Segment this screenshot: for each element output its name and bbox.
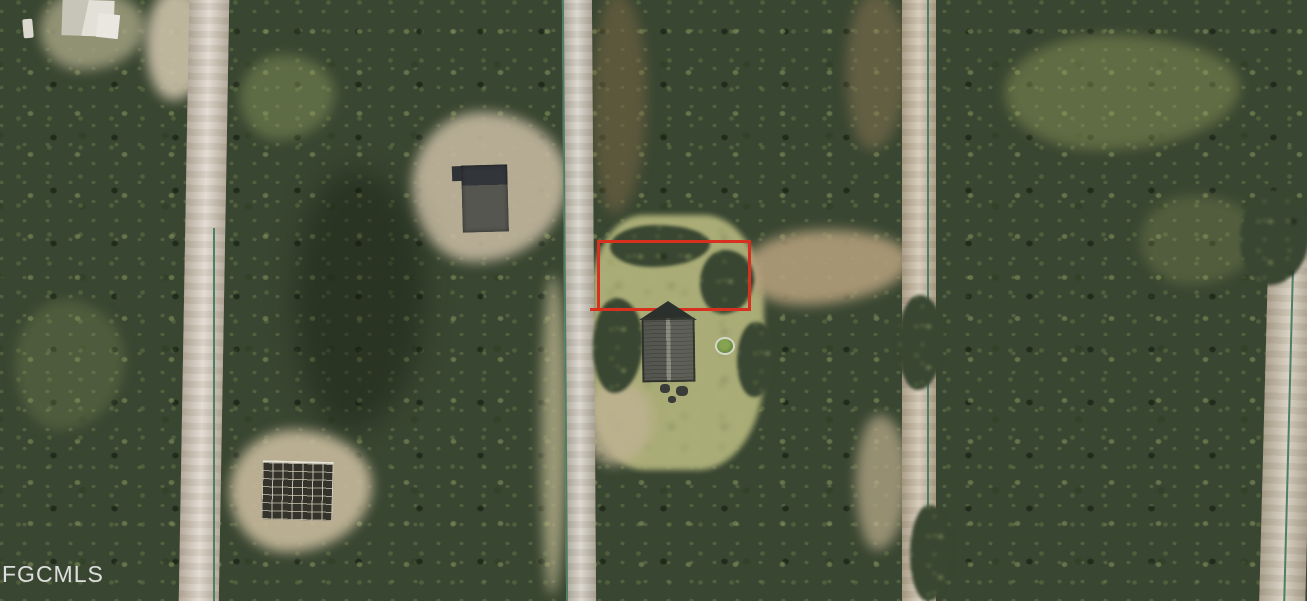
above-ground-pool: [715, 337, 735, 355]
center-road: [562, 0, 596, 601]
lot-boundary-tail: [590, 308, 598, 311]
survey-line-edge-road: [1283, 232, 1295, 601]
pool-water: [717, 339, 733, 353]
trees-over-edge-road-top: [1240, 190, 1307, 285]
aerial-map: FGCMLS: [0, 0, 1307, 601]
topleft-house-annex: [96, 13, 120, 39]
survey-line-left-road: [213, 228, 215, 601]
yard-object-3: [668, 396, 676, 403]
yard-object-1: [660, 384, 670, 393]
construction-house-framing: [261, 460, 334, 521]
main-house-roof: [642, 318, 696, 383]
white-object-topleft: [22, 19, 34, 39]
fgcmls-watermark: FGCMLS: [2, 561, 104, 588]
outbuilding-roof: [461, 164, 509, 232]
yard-object-2: [676, 386, 688, 396]
